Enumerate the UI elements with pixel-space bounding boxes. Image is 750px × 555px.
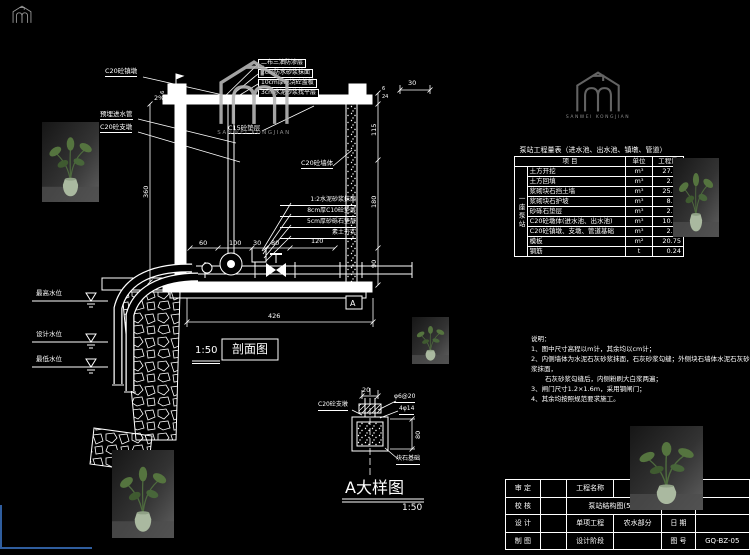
qt-item: 浆砌块石挡土墙 <box>527 187 625 197</box>
qt-item: 钢筋 <box>527 247 625 257</box>
detail-label-rebar: 4φ14 <box>399 406 414 415</box>
tb-approved-label: 审 定 <box>506 480 541 498</box>
table-row: 土方回填m³2.06 <box>515 177 684 187</box>
table-row: 砂砾石垫层m³2.06 <box>515 207 684 217</box>
note-line: 2、内侧墙体为水泥石灰砂浆抹面，石灰砂浆勾缝；外侧块石墙体水泥石灰砂浆抹面， <box>531 354 750 374</box>
qt-unit: m³ <box>626 207 653 217</box>
dim-90: 90 <box>371 260 378 268</box>
dim-360: 360 <box>143 186 150 198</box>
tb-checked-label: 校 核 <box>506 497 541 515</box>
blank-cell <box>695 515 749 533</box>
title-block-row: 制 图 设计阶段 图 号 GQ-BZ-05 <box>506 532 750 550</box>
label-high-water-level: 最高水位 <box>36 290 62 297</box>
logo-watermark-icon <box>208 58 300 128</box>
title-block-row: 校 核 泵站结构图(5/5) 比 例 <box>506 497 750 515</box>
detail-label-stirrup: φ6@20 <box>394 394 415 403</box>
notes-heading: 说明： <box>531 334 750 344</box>
tb-stage-label: 设计阶段 <box>567 532 614 550</box>
slope-label-right: 2% <box>330 95 340 102</box>
plant-photo <box>673 158 719 237</box>
label-c10-cushion: 8cm厚C10砼垫层 <box>280 208 356 217</box>
title-block-row: 审 定 工程名称 <box>506 480 750 498</box>
detail-label-foundation: 块石基础 <box>396 456 420 465</box>
dim-180: 180 <box>371 196 378 208</box>
section-scale: 1:50 <box>195 345 217 357</box>
qt-item: C20砼墩体(进水池、出水池) <box>527 217 625 227</box>
dim-115: 115 <box>371 124 378 136</box>
qt-item: 模板 <box>527 237 625 247</box>
blank-cell <box>695 497 749 515</box>
tb-drawn-label: 制 图 <box>506 532 541 550</box>
qt-header-unit: 单位 <box>626 157 653 167</box>
dim-6-micro: 6 <box>382 87 385 93</box>
detail-dim-20: 20 <box>362 387 370 394</box>
dim-426: 426 <box>268 313 280 320</box>
label-support-pier: C20砼支墩 <box>100 124 132 133</box>
note-line: 石灰砂浆勾缝后，内侧粉刷大白浆两遍； <box>545 374 750 384</box>
qt-qty: 20.75 <box>653 237 684 247</box>
detail-label-pier: C20砼支墩 <box>318 402 348 411</box>
frame-line-left <box>0 505 2 549</box>
table-row: C20砼镇墩、支墩、管道基础m³2.06 <box>515 227 684 237</box>
dim-6-left: 6 <box>160 91 166 95</box>
tb-number-value: GQ-BZ-05 <box>695 532 749 550</box>
qt-header-item: 项 目 <box>515 157 626 167</box>
qt-item: 砂砾石垫层 <box>527 207 625 217</box>
section-title: 剖面图 <box>222 339 278 360</box>
label-cement-finish: 1:2水泥砂浆抹面 <box>280 197 356 206</box>
table-row: 浆砌块石护坡m³8.09 <box>515 197 684 207</box>
dim-80i: 80 <box>271 240 279 247</box>
blank-cell <box>540 515 566 533</box>
qt-unit: m³ <box>626 197 653 207</box>
dim-100: 100 <box>229 240 241 247</box>
label-low-water-level: 最低水位 <box>36 356 62 363</box>
qt-unit: m³ <box>626 217 653 227</box>
watermark-text: SANWEI KONGJIAN <box>198 130 310 136</box>
dim-24-micro: 24 <box>382 95 388 101</box>
blank-cell <box>614 532 662 550</box>
table-row: 浆砌块石挡土墙m³25.60 <box>515 187 684 197</box>
dim-120: 120 <box>311 238 323 245</box>
frame-line-bottom <box>0 547 92 549</box>
table-row: 钢筋t0.24 <box>515 247 684 257</box>
detail-dim-80: 80 <box>415 431 422 439</box>
note-line: 1、图中尺寸高程以m计，其余均以cm计； <box>531 344 750 354</box>
qt-unit: m³ <box>626 167 653 177</box>
label-anchor-block: C20砼镇墩 <box>105 68 137 77</box>
detail-title: A大样图 <box>345 479 404 497</box>
dim-30i: 30 <box>253 240 261 247</box>
table-row: C20砼墩体(进水池、出水池)m³10.60 <box>515 217 684 227</box>
table-row: 一座泵站 土方开挖 m³ 27.60 <box>515 167 684 177</box>
label-embedded-pipe: 预埋进水管 <box>100 111 133 120</box>
slope-label-left: 2% <box>154 95 164 102</box>
title-block: 审 定 工程名称 校 核 泵站结构图(5/5) 比 例 设 计 单项工程 农水部… <box>505 479 750 550</box>
qt-unit: m² <box>626 237 653 247</box>
tb-subproject-label: 单项工程 <box>567 515 614 533</box>
tb-date-label: 日 期 <box>662 515 695 533</box>
logo-watermark-icon <box>10 5 34 24</box>
table-row: 模板m²20.75 <box>515 237 684 247</box>
tb-project-name-label: 工程名称 <box>567 480 614 498</box>
watermark-text: SANWEI KONGJIAN <box>556 115 640 120</box>
detail-scale: 1:50 <box>402 503 422 513</box>
qt-item: C20砼镇墩、支墩、管道基础 <box>527 227 625 237</box>
notes-block: 说明： 1、图中尺寸高程以m计，其余均以cm计； 2、内侧墙体为水泥石灰砂浆抹面… <box>531 334 750 404</box>
qt-unit: m³ <box>626 187 653 197</box>
blank-cell <box>540 480 566 498</box>
cad-drawing-canvas: 二布三油防渗层 2cm防水砂浆抹面 10cm厚现浇砼盖板 3cm水泥砂浆找平层 … <box>0 0 750 555</box>
qt-qty: 0.24 <box>653 247 684 257</box>
tb-subproject-value: 农水部分 <box>614 515 662 533</box>
section-marker-letter: A <box>350 299 355 308</box>
qt-group-label: 一座泵站 <box>515 167 528 257</box>
dim-30-top: 30 <box>408 80 416 87</box>
label-c20-wall: C20砼墙体 <box>301 160 333 169</box>
plant-photo <box>630 426 703 510</box>
plant-photo <box>412 317 449 364</box>
plant-photo <box>42 122 99 202</box>
qt-unit: m³ <box>626 227 653 237</box>
qt-unit: m³ <box>626 177 653 187</box>
qt-item: 土方回填 <box>527 177 625 187</box>
blank-cell <box>540 532 566 550</box>
title-block-row: 设 计 单项工程 农水部分 日 期 <box>506 515 750 533</box>
tb-number-label: 图 号 <box>662 532 695 550</box>
plant-photo <box>112 450 174 538</box>
label-design-water-level: 设计水位 <box>36 331 62 338</box>
qt-item: 土方开挖 <box>527 167 625 177</box>
blank-cell <box>540 497 566 515</box>
tb-designed-label: 设 计 <box>506 515 541 533</box>
label-gravel-cushion: 5cm厚砂砾石垫层 <box>280 219 356 228</box>
logo-watermark-icon <box>567 70 629 114</box>
qt-item: 浆砌块石护坡 <box>527 197 625 207</box>
qt-unit: t <box>626 247 653 257</box>
note-line: 4、其余均按照规范要求施工。 <box>531 394 750 404</box>
note-line: 3、闸门尺寸1.2×1.6m，采用钢闸门； <box>531 384 750 394</box>
dim-60: 60 <box>199 240 207 247</box>
quantity-table: 项 目 单位 工程量 一座泵站 土方开挖 m³ 27.60 土方回填m³2.06… <box>514 156 684 257</box>
